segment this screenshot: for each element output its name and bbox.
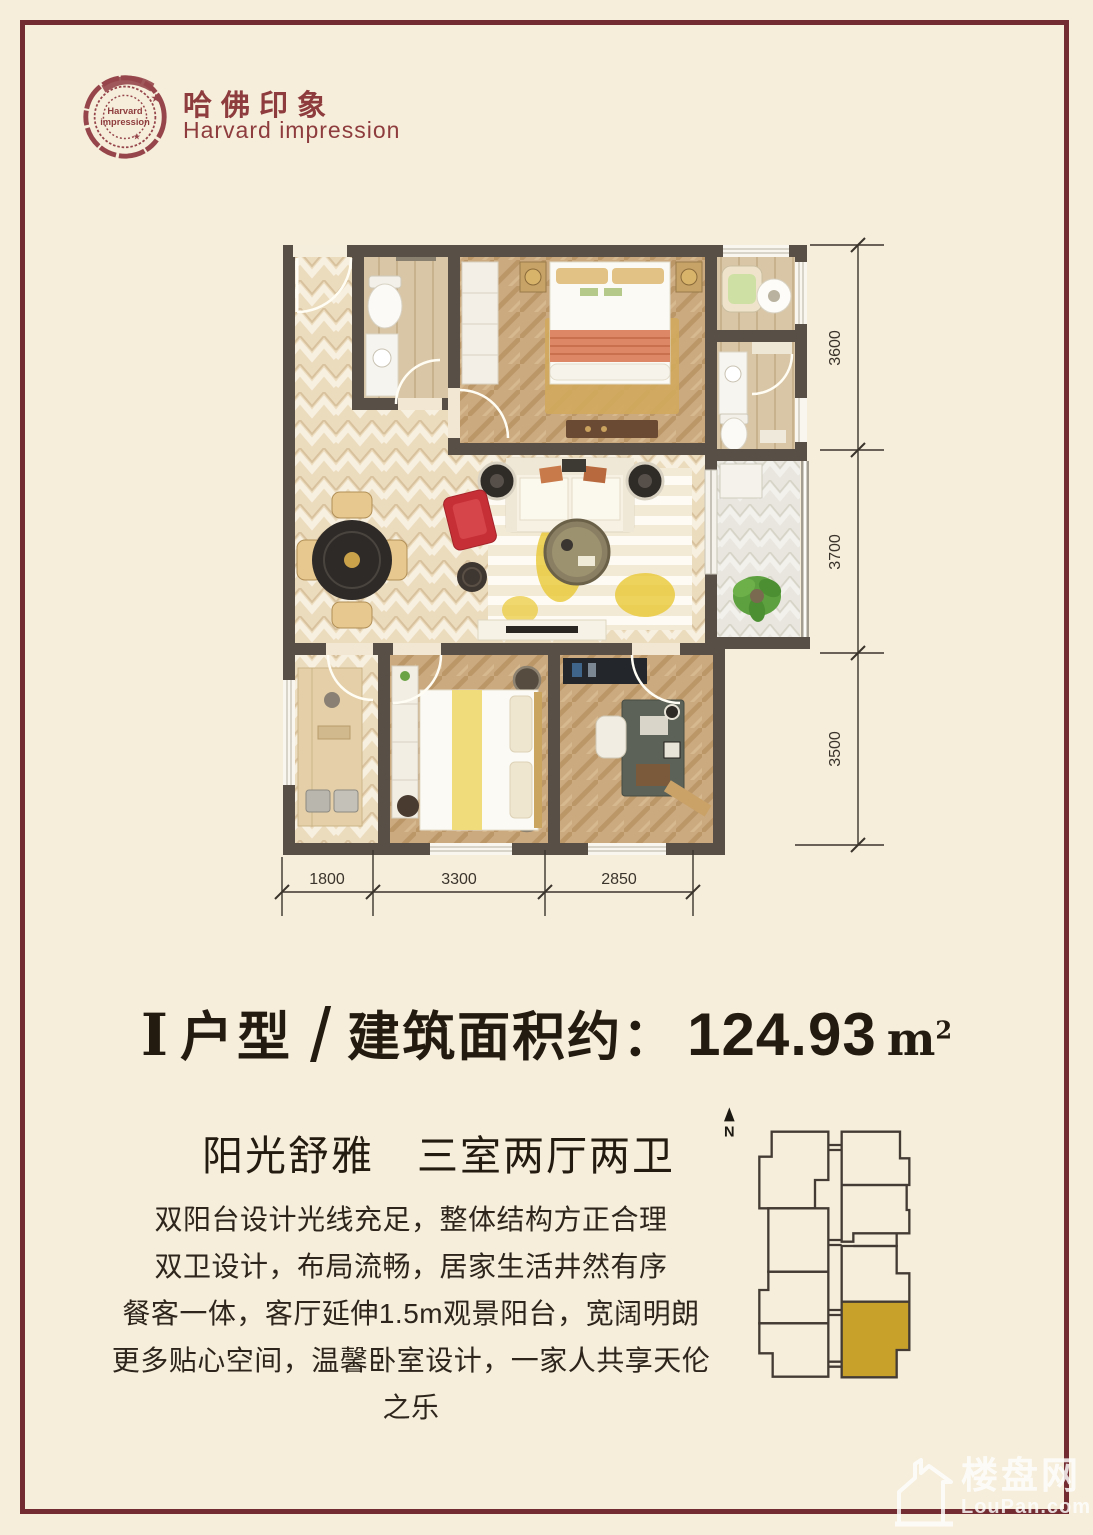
selling-point-heading: 阳光舒雅 三室两厅两卫 xyxy=(202,1122,675,1182)
brand-name-en: Harvard impression xyxy=(183,117,400,144)
north-arrow-icon xyxy=(724,1107,735,1121)
stamp-star-icon: ★ xyxy=(133,131,141,141)
bedroom2-group xyxy=(392,666,542,831)
north-label: N xyxy=(724,1125,735,1141)
description-line: 双阳台设计光线充足，整体结构方正合理 xyxy=(108,1196,714,1243)
poster-page: Harvard impression ★ ★ 哈佛印象 Harvard impr… xyxy=(0,0,1093,1535)
building-key-plan: N xyxy=(700,1090,1020,1440)
title-slash: / xyxy=(310,992,331,1079)
unit-type-label: 户型 xyxy=(180,995,294,1071)
building-outline xyxy=(759,1132,909,1378)
area-value: 124.93 xyxy=(687,1000,877,1069)
description-block: 双阳台设计光线充足，整体结构方正合理 双卫设计，布局流畅，居家生活井然有序 餐客… xyxy=(108,1196,714,1431)
dim-bottom-3: 2850 xyxy=(601,871,637,888)
highlighted-unit xyxy=(842,1302,910,1378)
dim-bottom-1: 1800 xyxy=(309,871,345,888)
watermark-cn: 楼盘网 xyxy=(961,1456,1091,1496)
dim-right-2: 3700 xyxy=(827,534,844,570)
harvard-stamp-icon: Harvard impression ★ ★ xyxy=(76,64,174,164)
dim-bottom-2: 3300 xyxy=(441,871,477,888)
description-line: 双卫设计，布局流畅，居家生活井然有序 xyxy=(108,1243,714,1290)
kitchen-group xyxy=(298,668,362,826)
description-line: 餐客一体，客厅延伸1.5m观景阳台，宽阔明朗 xyxy=(108,1290,714,1337)
area-unit: m2 xyxy=(887,1012,952,1066)
stamp-text-1: Harvard xyxy=(107,106,142,116)
site-watermark: 楼盘网 LouPan.com xyxy=(893,1456,1091,1528)
watermark-house-icon xyxy=(893,1456,955,1528)
stamp-star-icon: ★ xyxy=(150,92,161,105)
dim-right-1: 3600 xyxy=(827,330,844,366)
floor-plan: 3600 3700 3500 1800 3300 2850 xyxy=(260,230,900,920)
plan-title: I 户型 / 建筑面积约： 124.93 m2 xyxy=(0,986,1093,1073)
watermark-en: LouPan.com xyxy=(961,1496,1091,1518)
area-label: 建筑面积约： xyxy=(347,995,677,1071)
watermark-text: 楼盘网 LouPan.com xyxy=(961,1456,1091,1518)
description-line: 更多贴心空间，温馨卧室设计，一家人共享天伦之乐 xyxy=(108,1337,714,1431)
unit-type-roman: I xyxy=(141,1001,168,1069)
stamp-text-2: impression xyxy=(100,117,150,127)
dim-right-3: 3500 xyxy=(827,731,844,767)
